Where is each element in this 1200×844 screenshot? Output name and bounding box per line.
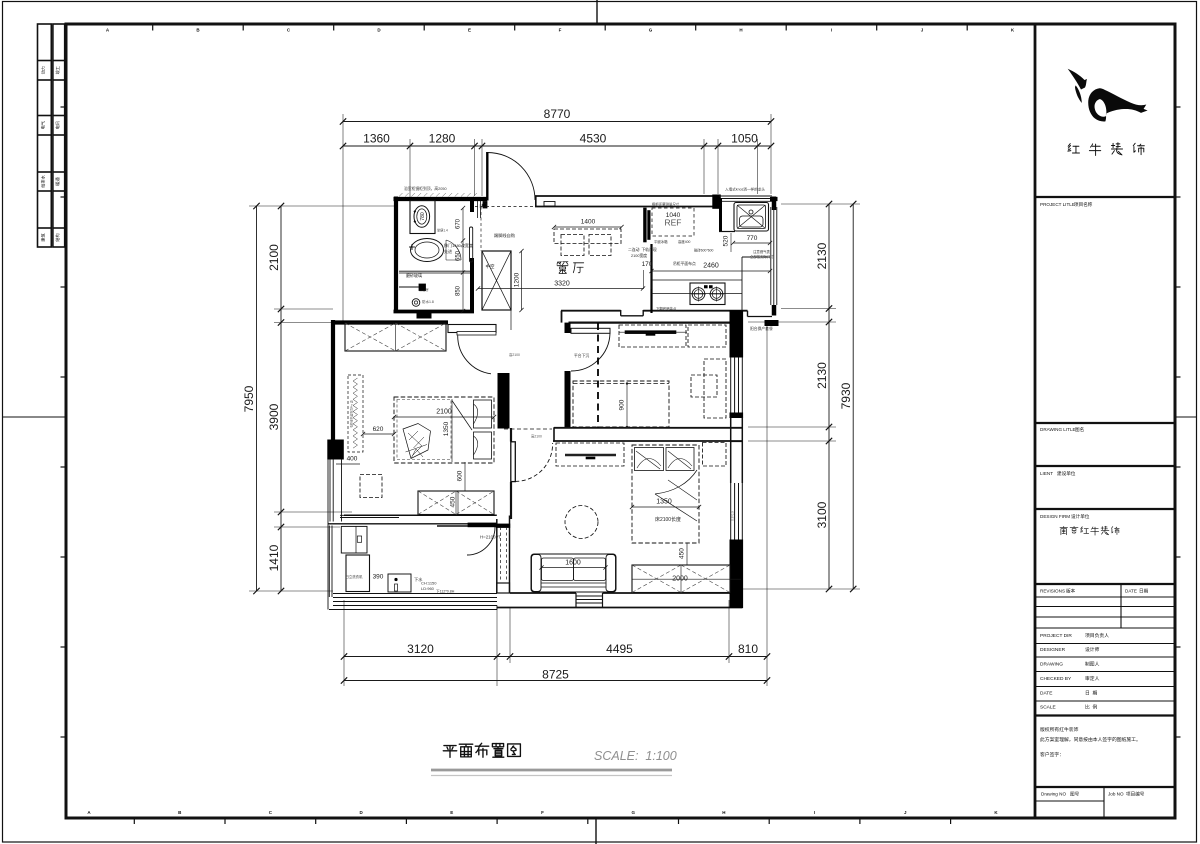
- svg-text:先进: 先进: [444, 248, 452, 254]
- svg-text:3100: 3100: [815, 501, 829, 528]
- svg-text:670: 670: [456, 218, 462, 229]
- svg-text:CH:1150: CH:1150: [421, 581, 437, 586]
- svg-text:400: 400: [347, 456, 358, 463]
- svg-text:E: E: [450, 810, 453, 815]
- svg-text:I: I: [831, 28, 832, 33]
- svg-text:7930: 7930: [839, 382, 853, 409]
- svg-text:H: H: [722, 810, 725, 815]
- svg-text:结构: 结构: [54, 233, 61, 241]
- svg-text:2100宽度: 2100宽度: [631, 253, 647, 258]
- svg-text:H=2100PT: H=2100PT: [480, 535, 501, 540]
- svg-text:高2100: 高2100: [509, 352, 520, 357]
- svg-text:8725: 8725: [542, 668, 569, 682]
- svg-text:2130: 2130: [815, 242, 829, 269]
- svg-text:动力: 动力: [39, 66, 46, 74]
- svg-text:REVISIONS: REVISIONS: [1040, 589, 1065, 594]
- svg-text:2130: 2130: [815, 362, 829, 389]
- svg-text:制图人: 制图人: [1085, 661, 1100, 668]
- svg-text:810: 810: [738, 642, 758, 656]
- svg-text:1400: 1400: [581, 219, 596, 226]
- svg-text:4530: 4530: [580, 132, 607, 146]
- svg-text:900: 900: [619, 399, 626, 410]
- svg-text:DRAWING: DRAWING: [1040, 662, 1063, 668]
- svg-text:高2100: 高2100: [531, 434, 542, 439]
- svg-text:H: H: [739, 28, 742, 33]
- svg-text:下翻底暗装点: 下翻底暗装点: [656, 306, 677, 311]
- svg-text:客户签字：: 客户签字：: [1040, 751, 1064, 758]
- svg-text:防水1.8: 防水1.8: [422, 299, 434, 304]
- svg-text:暖通: 暖通: [54, 177, 61, 186]
- svg-text:DRAWING LITLE: DRAWING LITLE: [1040, 427, 1076, 432]
- svg-text:E: E: [468, 28, 471, 33]
- svg-text:注意燃气表: 注意燃气表: [753, 249, 771, 254]
- svg-text:下112*0.8H: 下112*0.8H: [436, 590, 455, 594]
- svg-text:DESIGN FIRM: DESIGN FIRM: [1040, 514, 1070, 519]
- svg-text:中空: 中空: [486, 263, 495, 270]
- svg-text:电讯: 电讯: [54, 120, 61, 129]
- svg-text:设计单位: 设计单位: [1071, 513, 1090, 520]
- svg-text:I: I: [814, 810, 815, 815]
- svg-text:600: 600: [457, 470, 464, 481]
- svg-text:450: 450: [679, 548, 686, 559]
- svg-text:3120: 3120: [407, 642, 434, 656]
- svg-text:全部按实际尺寸: 全部按实际尺寸: [750, 254, 774, 259]
- svg-text:竣工: 竣工: [54, 66, 61, 74]
- svg-text:移门1480改宽度: 移门1480改宽度: [444, 242, 473, 248]
- svg-text:项目编号: 项目编号: [1126, 791, 1145, 798]
- svg-text:图名: 图名: [1075, 426, 1084, 433]
- svg-text:Drawing NO: Drawing NO: [1041, 792, 1066, 797]
- svg-text:版本: 版本: [1066, 588, 1076, 595]
- svg-text:390: 390: [373, 574, 384, 581]
- svg-text:1050: 1050: [731, 132, 758, 146]
- svg-text:平台下沉: 平台下沉: [574, 353, 589, 358]
- svg-text:REF: REF: [665, 218, 682, 228]
- svg-text:踢脚线自购: 踢脚线自购: [494, 232, 515, 239]
- svg-text:Job NO: Job NO: [1108, 792, 1124, 797]
- svg-text:3900: 3900: [267, 403, 281, 430]
- svg-text:建筑: 建筑: [39, 233, 46, 242]
- svg-text:8770: 8770: [544, 107, 571, 121]
- svg-text:850: 850: [456, 285, 462, 296]
- svg-text:项目名称: 项目名称: [1074, 201, 1093, 208]
- svg-text:阳台换产套餐: 阳台换产套餐: [750, 326, 773, 331]
- svg-text:PROJECT DIR: PROJECT DIR: [1040, 633, 1072, 639]
- svg-text:项目负责人: 项目负责人: [1085, 632, 1109, 639]
- svg-text:1350: 1350: [656, 499, 672, 506]
- svg-text:比 例: 比 例: [1085, 704, 1097, 711]
- svg-text:2460: 2460: [703, 263, 719, 270]
- svg-text:CHECKED BY: CHECKED BY: [1040, 676, 1072, 682]
- svg-text:平嵌冰箱: 平嵌冰箱: [654, 239, 668, 244]
- svg-text:1410: 1410: [267, 544, 281, 571]
- svg-text:给排水: 给排水: [39, 174, 46, 187]
- svg-text:1200: 1200: [514, 272, 521, 287]
- svg-text:0.8 0.9: 0.8 0.9: [731, 511, 735, 521]
- svg-text:坐便1.4: 坐便1.4: [437, 228, 448, 233]
- svg-text:1600: 1600: [565, 560, 581, 567]
- svg-text:衣柜或书桌到顶Pro 高: 衣柜或书桌到顶Pro 高: [350, 400, 354, 428]
- svg-text:日 期: 日 期: [1085, 691, 1097, 697]
- svg-text:SCALE: 1:100: SCALE: 1:100: [594, 749, 677, 763]
- svg-text:G: G: [649, 28, 653, 33]
- svg-text:G: G: [631, 810, 635, 815]
- svg-text:SCALE: SCALE: [1040, 705, 1056, 711]
- svg-text:2000: 2000: [672, 576, 688, 583]
- svg-text:设计师: 设计师: [1085, 646, 1100, 653]
- svg-text:F: F: [559, 28, 562, 33]
- svg-text:建设单位: 建设单位: [1057, 470, 1076, 477]
- svg-text:高度400: 高度400: [678, 239, 691, 244]
- svg-text:浴室柜镜柜到顶，高2050: 浴室柜镜柜到顶，高2050: [404, 186, 447, 191]
- svg-text:2100: 2100: [267, 244, 281, 271]
- svg-text:床2100长度: 床2100长度: [655, 516, 681, 523]
- svg-text:版权所有红牛装饰: 版权所有红牛装饰: [1040, 726, 1079, 733]
- svg-text:二连动 下轨门现: 二连动 下轨门现: [628, 247, 657, 252]
- svg-text:780: 780: [420, 212, 426, 221]
- svg-text:4495: 4495: [606, 642, 633, 656]
- svg-text:橱柜还要测量尺寸: 橱柜还要测量尺寸: [652, 202, 680, 207]
- svg-text:吊柜平面布点: 吊柜平面布点: [673, 261, 696, 266]
- svg-text:1360: 1360: [363, 132, 390, 146]
- svg-text:2100: 2100: [436, 409, 452, 416]
- svg-text:450: 450: [450, 496, 457, 507]
- svg-text:1280: 1280: [429, 132, 456, 146]
- svg-text:3320: 3320: [554, 281, 570, 288]
- svg-text:入墙式knos洒一样的龙头: 入墙式knos洒一样的龙头: [725, 187, 765, 192]
- svg-text:520: 520: [723, 235, 730, 246]
- svg-text:170: 170: [642, 261, 653, 268]
- svg-text:1350: 1350: [443, 421, 450, 436]
- svg-text:审定人: 审定人: [1085, 675, 1100, 682]
- svg-text:DESIGNER: DESIGNER: [1040, 647, 1066, 653]
- svg-text:此方案室理解，同意按由本人签字的图纸施工。: 此方案室理解，同意按由本人签字的图纸施工。: [1040, 736, 1141, 743]
- svg-text:LIENT: LIENT: [1040, 471, 1053, 476]
- svg-text:磨砂玻璃: 磨砂玻璃: [406, 272, 422, 278]
- svg-text:PROJECT LITLE: PROJECT LITLE: [1040, 202, 1075, 207]
- svg-text:7950: 7950: [242, 385, 256, 412]
- svg-text:磁砖600*600: 磁砖600*600: [694, 248, 714, 253]
- svg-text:F: F: [541, 810, 544, 815]
- svg-text:电气: 电气: [39, 120, 45, 129]
- svg-text:620: 620: [373, 426, 384, 433]
- svg-text:日立洗衣机: 日立洗衣机: [346, 574, 364, 579]
- svg-text:DATE: DATE: [1040, 691, 1052, 697]
- svg-text:770: 770: [747, 235, 758, 242]
- svg-text:650: 650: [456, 250, 462, 261]
- svg-text:LD:960: LD:960: [421, 586, 435, 591]
- svg-text:DATE: DATE: [1125, 589, 1137, 594]
